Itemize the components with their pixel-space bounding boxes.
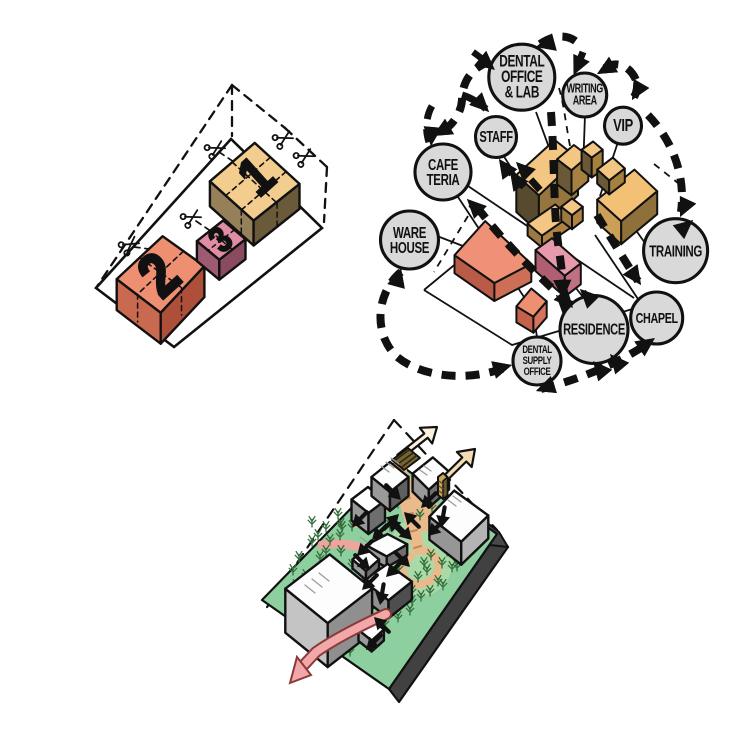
svg-text:VIP: VIP <box>613 116 633 136</box>
svg-text:HOUSE: HOUSE <box>390 238 429 256</box>
svg-text:CHAPEL: CHAPEL <box>636 309 679 326</box>
svg-text:STAFF: STAFF <box>479 128 512 145</box>
svg-text:RESIDENCE: RESIDENCE <box>563 321 625 338</box>
svg-text:AREA: AREA <box>573 94 598 108</box>
svg-text:& LAB: & LAB <box>505 84 540 102</box>
svg-text:OFFICE: OFFICE <box>524 366 552 379</box>
svg-text:TERIA: TERIA <box>427 170 460 188</box>
svg-text:TRAINING: TRAINING <box>649 242 702 260</box>
